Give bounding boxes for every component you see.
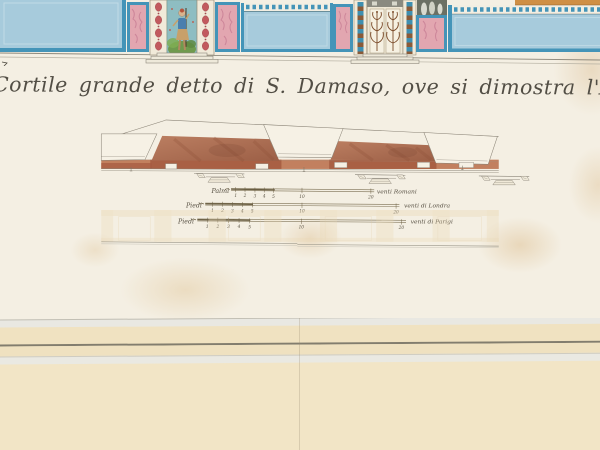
cornice-section-plan: Palmi 1 2 3 4 5 10 20 venti Romani	[0, 108, 600, 320]
marble-panel-2	[215, 2, 240, 52]
ceiling-fragment	[515, 0, 600, 5]
print-sheet: Cortile grande detto di S. Damaso, ove s…	[0, 0, 600, 320]
mat-surface	[0, 318, 600, 450]
unit-name: venti Romani	[377, 188, 417, 195]
tick-number: 1	[206, 225, 209, 230]
tick-number: 5	[272, 195, 275, 200]
tick-number: 3	[254, 194, 257, 199]
scale-label: Piedi	[185, 202, 202, 209]
frieze-baseboard	[0, 53, 600, 64]
grotesque-figure-panel	[167, 0, 197, 57]
marble-panel-1	[127, 2, 149, 52]
tick-number: 10	[299, 195, 305, 200]
tick-number: 20	[398, 226, 405, 231]
blue-panel-right	[448, 5, 600, 52]
tick-number: 20	[367, 195, 374, 200]
scale-bar-palmi-romani: Palmi 1 2 3 4 5 10 20 venti Romani	[210, 187, 416, 200]
blue-panel-left	[0, 0, 126, 52]
mat-seam	[299, 318, 300, 450]
print-title: Cortile grande detto di S. Damaso, ove s…	[0, 72, 600, 99]
statue-fragment	[417, 0, 447, 17]
print-bottom-edge	[101, 242, 499, 248]
tick-number: 4	[262, 194, 266, 199]
bay-opening-3	[424, 133, 498, 165]
medallion-pilaster-2	[197, 0, 214, 55]
plinth-steps-left	[146, 53, 218, 63]
framed-print-photo: Cortile grande detto di S. Damaso, ove s…	[0, 0, 600, 450]
candelabra-pilaster	[367, 0, 403, 55]
diamond-border-1	[354, 0, 367, 55]
marble-panel-3	[333, 4, 353, 52]
corbel-detail-2	[355, 175, 405, 184]
loggia-frieze-elevation	[0, 0, 600, 66]
blue-panel-center	[241, 3, 333, 52]
plinth-steps-right	[351, 54, 419, 64]
medallion-pilaster-1	[150, 0, 167, 55]
corbel-detail-1	[194, 173, 244, 182]
diamond-border-2	[403, 0, 416, 55]
bay-opening-2	[264, 125, 344, 158]
pen-mark	[2, 62, 7, 66]
tick-number: 10	[299, 226, 305, 231]
mat-lower-board	[0, 361, 600, 450]
mat-board	[0, 318, 600, 450]
unit-name: venti di Londra	[404, 202, 451, 209]
tick-number: 1	[234, 194, 237, 199]
scale-label: Piedi	[177, 218, 194, 225]
tick-number: 5	[248, 226, 251, 231]
tick-number: 2	[243, 194, 247, 199]
marble-panel-4	[416, 15, 447, 52]
tick-number: 4	[237, 225, 241, 230]
corbel-detail-3	[479, 176, 529, 185]
